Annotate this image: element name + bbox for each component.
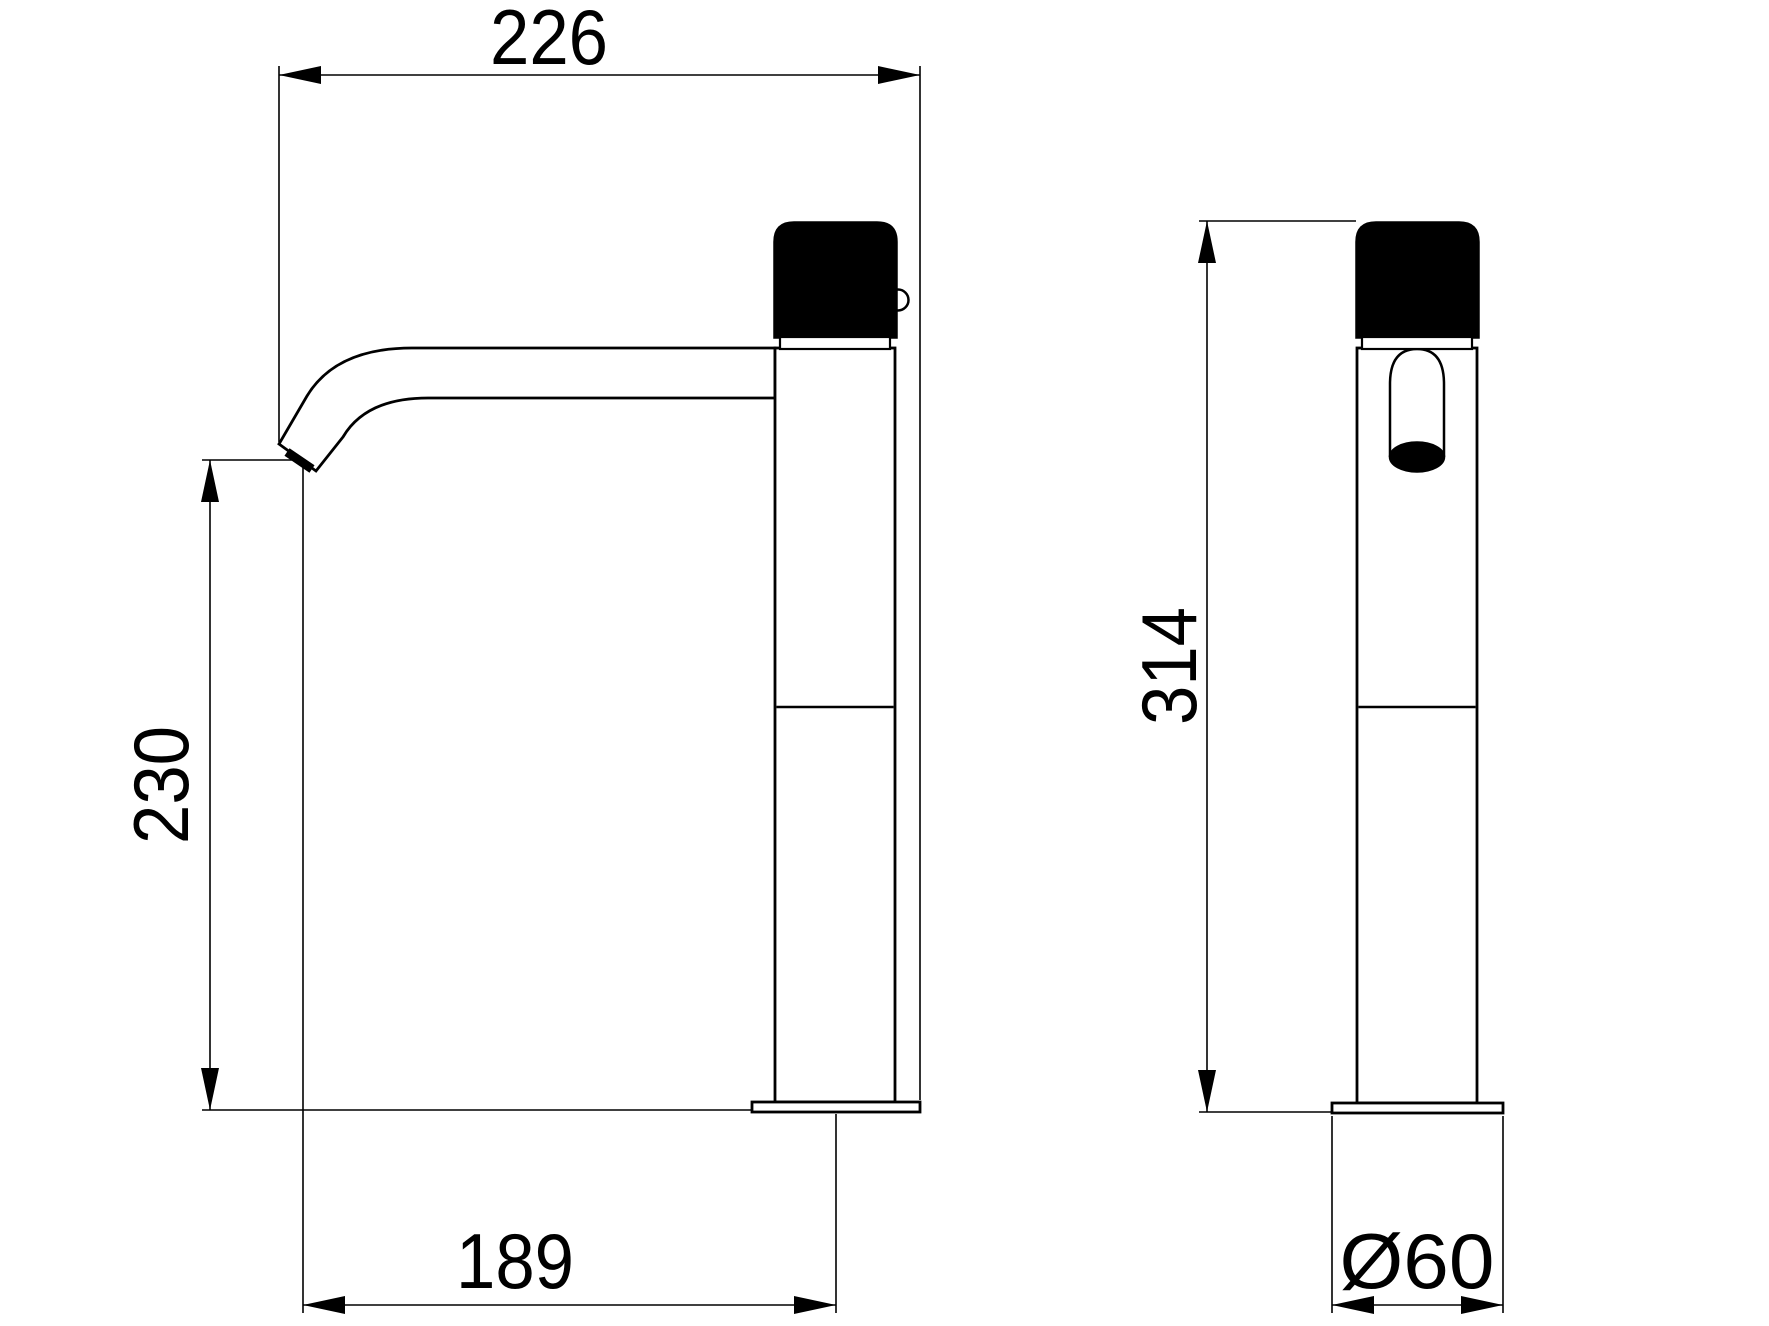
arrowhead-right [794,1296,836,1314]
arrowhead-up [201,460,219,502]
dim-spout-reach-label: 189 [456,1217,574,1305]
base-flange-front [752,1102,920,1112]
arrowhead-left [279,66,321,84]
dim-base-diameter-label: Ø60 [1340,1217,1495,1305]
dim-overall-height-label: 314 [1125,607,1213,725]
handle-knob-front [774,222,897,338]
technical-drawing-canvas: 226 230 189 314 [0,0,1769,1326]
dim-overall-reach-label: 226 [490,0,608,81]
handle-knob-side [1356,222,1479,338]
arrowhead-left [303,1296,345,1314]
side-view-group [1332,222,1503,1113]
dim-spout-height-label: 230 [117,726,205,844]
arrowhead-up [1198,221,1216,263]
spout-shape [279,348,775,471]
dim-overall-height-group: 314 [1125,221,1356,1112]
faucet-body-front [775,348,895,1102]
neck-ring-front [780,337,890,349]
faucet-drawing-svg: 226 230 189 314 [0,0,1769,1326]
arrowhead-down [201,1068,219,1110]
neck-ring-side [1362,337,1472,349]
arrowhead-down [1198,1070,1216,1112]
dim-spout-height-group: 230 [117,460,753,1110]
dim-base-diameter-group: Ø60 [1332,1116,1503,1314]
arrowhead-right [878,66,920,84]
base-flange-side [1332,1103,1503,1113]
dim-spout-reach-group: 189 [303,460,836,1314]
front-view-group [279,222,920,1112]
spout-outlet-ellipse [1390,442,1445,472]
